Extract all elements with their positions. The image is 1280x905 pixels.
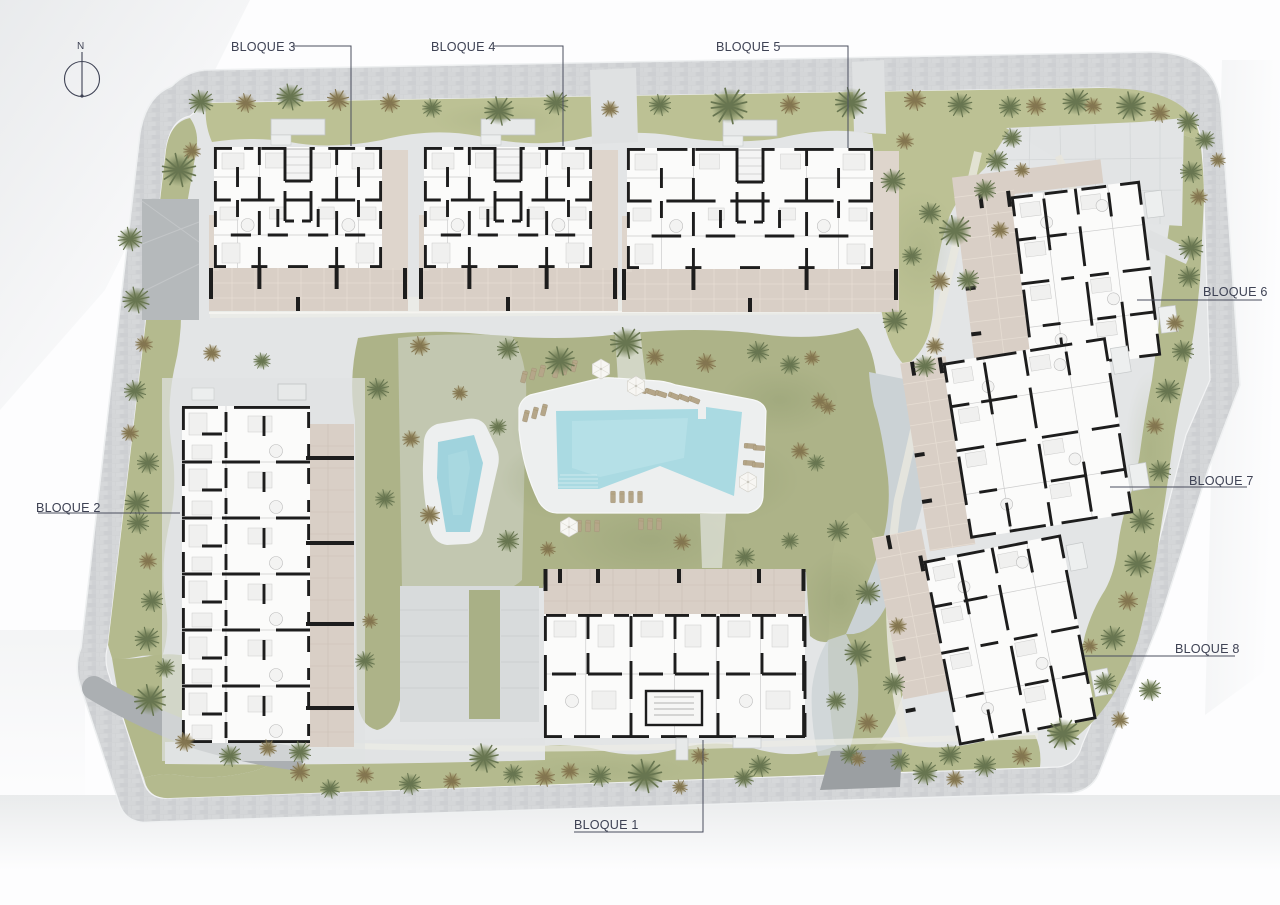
svg-text:BLOQUE 8: BLOQUE 8 <box>1175 642 1240 656</box>
svg-text:BLOQUE 5: BLOQUE 5 <box>716 40 781 54</box>
svg-text:N: N <box>77 41 84 52</box>
svg-text:BLOQUE 4: BLOQUE 4 <box>431 40 496 54</box>
svg-text:BLOQUE 7: BLOQUE 7 <box>1189 474 1254 488</box>
svg-text:BLOQUE 6: BLOQUE 6 <box>1203 285 1268 299</box>
svg-text:BLOQUE 1: BLOQUE 1 <box>574 818 639 832</box>
svg-text:BLOQUE 3: BLOQUE 3 <box>231 40 296 54</box>
